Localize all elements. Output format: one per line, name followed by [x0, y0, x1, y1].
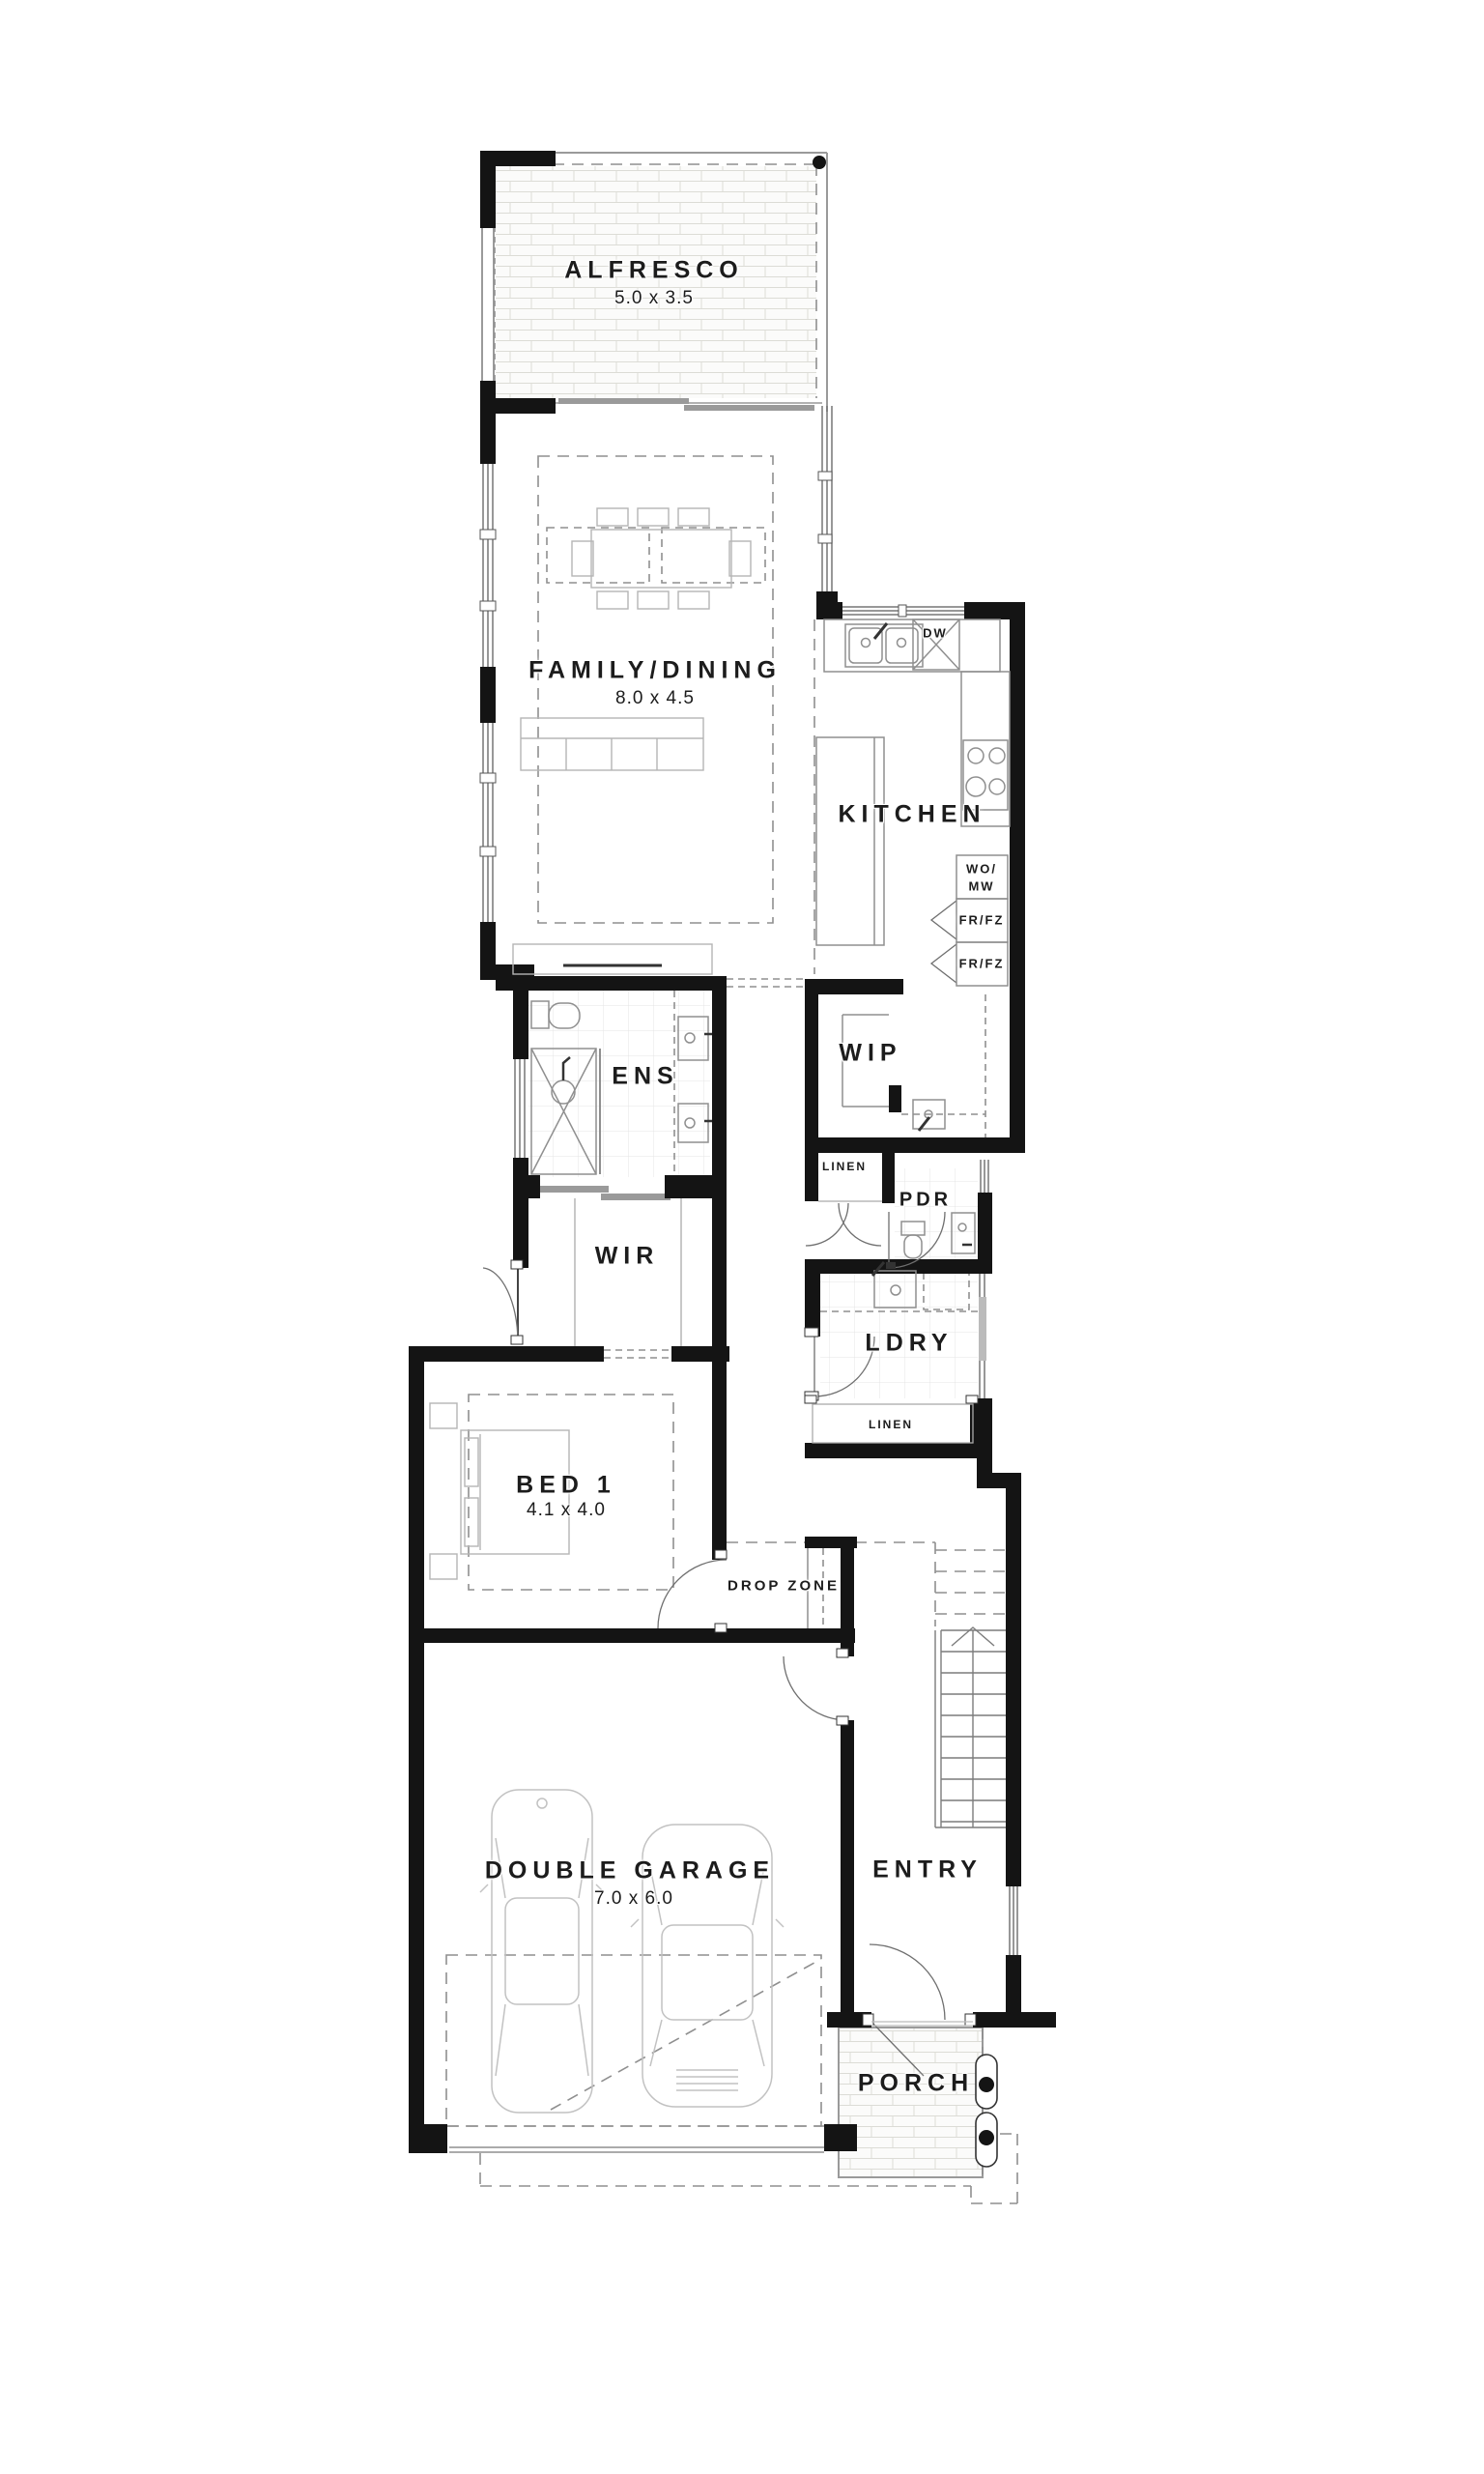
bed [461, 1430, 569, 1554]
stairs [935, 1627, 1006, 1827]
fridge-freezer-box-1 [956, 899, 1008, 942]
bed1-furniture [430, 1403, 569, 1579]
front-door-threshold [871, 2022, 973, 2026]
pdr-window [981, 1160, 988, 1193]
bed1-door [658, 1560, 727, 1628]
garage-entry-door [784, 1656, 847, 1720]
fridge-door-swing-2 [931, 944, 956, 983]
ens-wir-cavity-slider [539, 1186, 609, 1193]
fridge-door-swing-1 [931, 901, 956, 939]
wir-external-door [483, 1268, 518, 1341]
floor-plan-drawing [0, 0, 1484, 2474]
paving-and-tiles [496, 166, 983, 2177]
garage-elements [449, 1790, 824, 2152]
family-window-1 [483, 464, 493, 667]
linen2-cupboard [813, 1404, 973, 1443]
family-furniture [513, 508, 751, 974]
linen-door-left [806, 1203, 848, 1246]
oven-microwave-box [956, 855, 1008, 899]
floor-plan-page: ALFRESCO 5.0 x 3.5 FAMILY/DINING 8.0 x 4… [0, 0, 1484, 2474]
alfresco-post [813, 156, 826, 169]
walls [409, 151, 1056, 2153]
entry-window [1010, 1886, 1017, 1955]
porch-paving [839, 2028, 983, 2177]
wip-fittings [842, 1015, 945, 1131]
car-1 [480, 1790, 604, 2113]
kitchen-side-bench [961, 672, 1010, 826]
ens-shower-window [515, 1059, 525, 1158]
ldry-tiles [820, 1274, 978, 1398]
kitchen-sink [845, 624, 923, 667]
wir-shelves [575, 1198, 681, 1346]
fridge-freezer-box-2 [956, 942, 1008, 986]
kitchen-tap [874, 623, 887, 639]
nightstand-1 [430, 1403, 457, 1428]
pillow-1 [465, 1438, 478, 1486]
garage-door-panel [449, 2147, 824, 2152]
nightstand-2 [430, 1554, 457, 1579]
kitchen-bench [824, 619, 1000, 672]
kitchen-fittings [816, 619, 1010, 986]
family-window-2 [483, 723, 493, 922]
car-2 [631, 1825, 784, 2107]
family-east-window [822, 406, 832, 602]
alfresco-paving [496, 166, 816, 398]
linen-door-right [839, 1203, 881, 1246]
pillow-2 [465, 1498, 478, 1546]
tv-unit [513, 944, 712, 974]
wip-counter [842, 1015, 889, 1107]
